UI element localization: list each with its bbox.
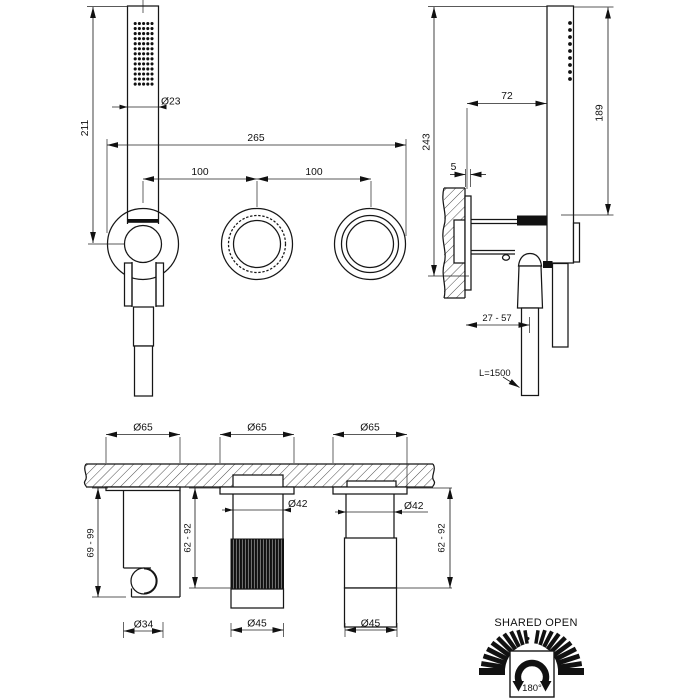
dim-d45-2: Ø45 [247,619,267,630]
dim-72: 72 [501,91,513,102]
rotation-legend: SHARED OPEN 180° [479,617,584,697]
holder-unit-plan [106,487,180,597]
technical-drawing-sheet: 211 Ø23 265 100 100 [0,0,700,700]
spray-nozzles-front [134,22,154,86]
dim-100-right: 100 [305,167,322,178]
smooth-handle-plan [333,487,407,627]
escutcheon-2-front [222,209,293,280]
dim-243: 243 [422,133,433,150]
dim-d45-3: Ø45 [361,619,381,630]
arc-top-dot [527,637,530,640]
knurled-handle-plan [220,487,294,608]
angle-label: 180° [522,683,542,694]
front-dimensions: 211 Ø23 265 100 100 [80,7,406,244]
open-bar-left [479,668,505,675]
dim-d42-3: Ø42 [404,501,424,512]
escutcheon-1-front [88,209,179,397]
wall-band-plan [84,464,434,488]
front-view: 211 Ø23 265 100 100 [80,0,406,396]
dim-d42-2: Ø42 [288,499,308,510]
dim-d23: Ø23 [161,97,181,108]
wall-section-side [443,188,471,298]
escutcheon-3-front [335,209,406,280]
dim-d65-3: Ø65 [360,423,380,434]
open-bar-right [558,668,584,675]
holder-arm-side [471,216,547,261]
dim-27-57: 27 - 57 [482,312,511,323]
dim-100-left: 100 [191,167,208,178]
shared-open-label: SHARED OPEN [494,617,577,629]
spray-nozzles-side [568,21,572,81]
side-view: 243 72 189 5 27 - 57 L=1500 [422,6,614,396]
dim-62-92-2: 62 - 92 [182,523,193,552]
dim-d65-1: Ø65 [133,423,153,434]
dim-211: 211 [80,120,91,137]
dim-d34: Ø34 [134,620,154,631]
dim-d65-2: Ø65 [247,423,267,434]
dim-189: 189 [595,104,606,121]
drawing-canvas: 211 Ø23 265 100 100 [0,0,700,700]
dim-265: 265 [247,133,264,144]
dim-hose-length: L=1500 [479,367,511,378]
plan-view: Ø65 Ø65 Ø65 69 - 99 Ø34 Ø42 [84,423,452,639]
dim-62-92-3: 62 - 92 [436,523,447,552]
dim-5: 5 [451,162,457,173]
dim-69-99: 69 - 99 [85,528,96,557]
hand-shower-side [518,6,580,396]
